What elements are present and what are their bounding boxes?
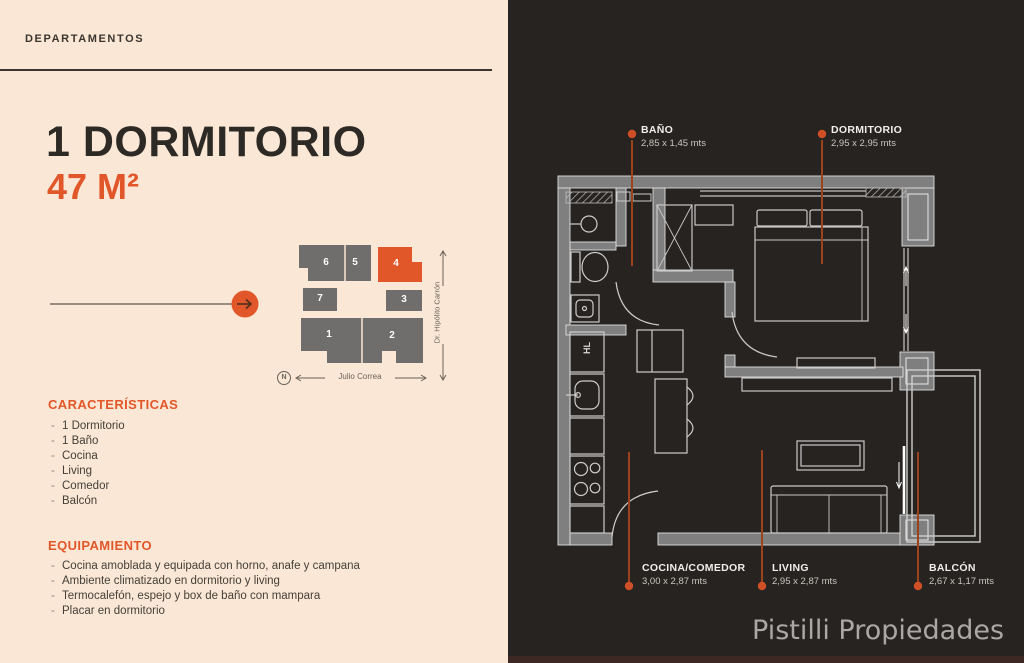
- panel-bottom-strip: [508, 656, 1024, 663]
- unit-number-3: 3: [397, 294, 411, 305]
- features-list: 1 Dormitorio 1 Baño Cocina Living Comedo…: [51, 419, 125, 508]
- features-heading: CARACTERÍSTICAS: [48, 397, 178, 412]
- room-label-dormitorio: DORMITORIO 2,95 x 2,95 mts: [831, 124, 902, 149]
- header-rule: [0, 69, 492, 71]
- feature-item: Comedor: [51, 479, 125, 494]
- equipment-heading: EQUIPAMIENTO: [48, 538, 152, 553]
- room-label-living: LIVING 2,95 x 2,87 mts: [772, 562, 837, 587]
- feature-item: Balcón: [51, 494, 125, 509]
- equipment-item: Termocalefón, espejo y box de baño con m…: [51, 589, 360, 604]
- agency-watermark: Pistilli Propiedades: [752, 615, 1014, 646]
- feature-item: Living: [51, 464, 125, 479]
- unit-number-6: 6: [319, 257, 333, 268]
- unit-number-4-highlighted: 4: [389, 258, 403, 269]
- street-label-bottom: Julio Correa: [326, 372, 394, 381]
- brochure-page: DEPARTAMENTOS 1 DORMITORIO 47 M² 6 5 4 7…: [0, 0, 1024, 663]
- compass-north-icon: N: [279, 374, 289, 381]
- street-label-right: Dr. Hipólito Carrón: [433, 273, 442, 353]
- room-label-bano: BAÑO 2,85 x 1,45 mts: [641, 124, 706, 149]
- feature-item: 1 Baño: [51, 434, 125, 449]
- fridge-label: HL: [582, 331, 592, 365]
- room-label-cocina-comedor: COCINA/COMEDOR 3,00 x 2,87 mts: [642, 562, 745, 587]
- unit-number-7: 7: [313, 293, 327, 304]
- page-eyebrow: DEPARTAMENTOS: [25, 33, 144, 45]
- equipment-item: Cocina amoblada y equipada con horno, an…: [51, 559, 360, 574]
- unit-number-2: 2: [385, 330, 399, 341]
- page-title: 1 DORMITORIO: [46, 118, 367, 167]
- unit-number-1: 1: [322, 329, 336, 340]
- equipment-item: Ambiente climatizado en dormitorio y liv…: [51, 574, 360, 589]
- equipment-list: Cocina amoblada y equipada con horno, an…: [51, 559, 360, 619]
- room-label-balcon: BALCÓN 2,67 x 1,17 mts: [929, 562, 994, 587]
- area-value: 47 M²: [47, 166, 139, 208]
- feature-item: Cocina: [51, 449, 125, 464]
- unit-number-5: 5: [348, 257, 362, 268]
- equipment-item: Placar en dormitorio: [51, 604, 360, 619]
- feature-item: 1 Dormitorio: [51, 419, 125, 434]
